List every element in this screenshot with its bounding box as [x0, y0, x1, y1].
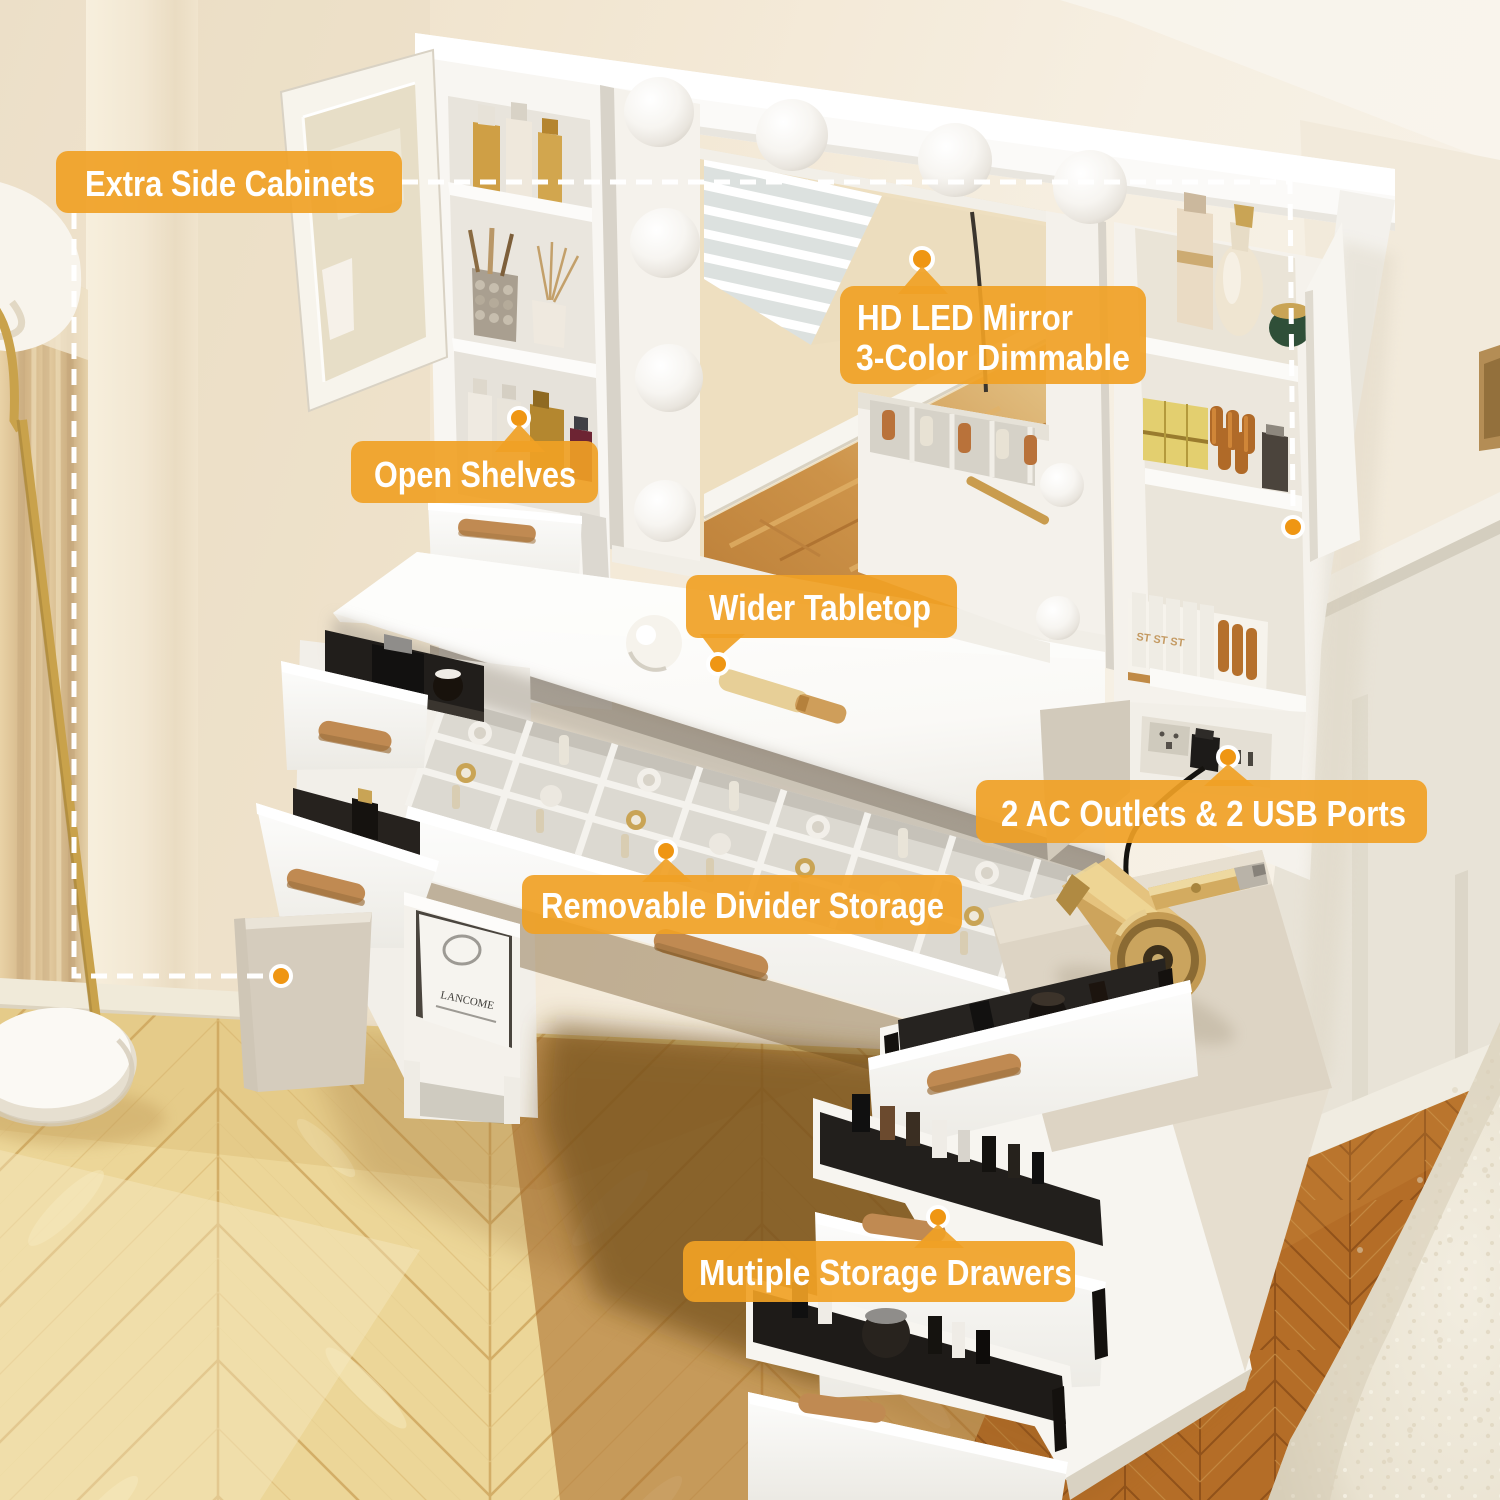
svg-text:3-Color Dimmable: 3-Color Dimmable [856, 337, 1130, 378]
svg-text:Mutiple Storage Drawers: Mutiple Storage Drawers [699, 1252, 1072, 1293]
svg-text:HD LED Mirror: HD LED Mirror [857, 297, 1073, 338]
svg-text:Removable Divider Storage: Removable Divider Storage [541, 885, 944, 926]
svg-text:Extra Side Cabinets: Extra Side Cabinets [85, 163, 375, 204]
svg-text:Open Shelves: Open Shelves [374, 454, 576, 495]
svg-text:Wider Tabletop: Wider Tabletop [709, 587, 931, 628]
svg-text:2 AC Outlets & 2 USB Ports: 2 AC Outlets & 2 USB Ports [1001, 793, 1406, 834]
